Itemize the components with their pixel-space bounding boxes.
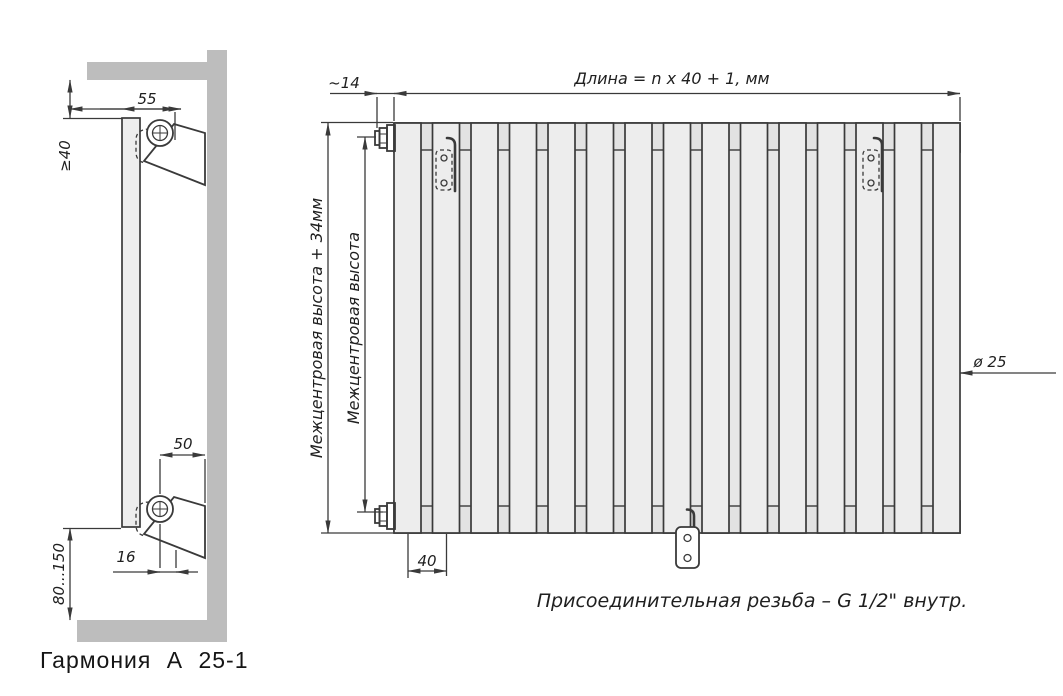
dim-label-40: 40 (417, 552, 436, 570)
dim-label-height-overall: Межцентровая высота + 34мм (307, 198, 326, 458)
dim-label-80-150: 80...150 (50, 543, 68, 605)
dim-bracket-offset-bottom: 50 (160, 435, 205, 503)
dim-tube-diameter: ø 25 (960, 353, 1056, 373)
front-tube-6 (587, 123, 614, 533)
front-tube-4 (510, 123, 537, 533)
dim-label-height-centers: Межцентровая высота (344, 232, 363, 424)
back-tube-3 (498, 150, 510, 506)
dim-ceiling-clearance: ≥40 (56, 80, 122, 172)
side-bracket-top (136, 120, 205, 185)
dim-label-diameter: ø 25 (972, 353, 1006, 371)
plug-bottom (375, 503, 395, 529)
front-tube-3 (471, 123, 498, 533)
dim-label-length: Длина = n x 40 + 1, мм (573, 69, 769, 88)
front-tube-7 (625, 123, 652, 533)
front-tube-14 (895, 123, 922, 533)
front-tube-1 (394, 123, 421, 533)
dim-label-50: 50 (173, 435, 192, 453)
floor-section (77, 620, 207, 642)
back-tube-11 (806, 150, 818, 506)
dim-valve-protrusion-and-length: ~14 Длина = n x 40 + 1, мм (328, 69, 960, 128)
dim-floor-clearance: 80...150 (50, 528, 121, 620)
back-tube-5 (575, 150, 587, 506)
air-valve-top (375, 125, 395, 151)
back-tube-8 (690, 150, 702, 506)
model-caption: Гармония А 25-1 (40, 647, 249, 673)
front-view: ~14 Длина = n x 40 + 1, мм Межцентровая … (307, 69, 1056, 612)
front-tube-5 (548, 123, 575, 533)
wall-section (207, 50, 227, 642)
dim-height-centers: Межцентровая высота (344, 137, 383, 512)
radiator-side-column (122, 118, 140, 527)
back-tube-2 (459, 150, 471, 506)
dim-label-14: ~14 (328, 74, 360, 92)
back-tube-6 (613, 150, 625, 506)
dim-label-55: 55 (137, 90, 156, 108)
front-tube-11 (779, 123, 806, 533)
ceiling-section (87, 62, 207, 80)
technical-drawing-page: 55 ≥40 50 16 80...150 (0, 0, 1063, 696)
back-tube-7 (652, 150, 664, 506)
back-tube-10 (767, 150, 779, 506)
front-tube-15 (933, 123, 960, 533)
side-view: 55 ≥40 50 16 80...150 (40, 50, 249, 673)
front-tube-9 (702, 123, 729, 533)
radiator-drawing: 55 ≥40 50 16 80...150 (0, 0, 1063, 696)
back-tube-13 (883, 150, 895, 506)
front-tube-12 (818, 123, 845, 533)
front-tube-10 (741, 123, 768, 533)
dim-label-ge40: ≥40 (56, 140, 74, 172)
back-tube-4 (536, 150, 548, 506)
front-tube-8 (664, 123, 691, 533)
side-bracket-bottom (136, 496, 205, 558)
radiator-body (394, 123, 960, 533)
back-tube-1 (421, 150, 433, 506)
thread-note: Присоединительная резьба – G 1/2" внутр. (537, 590, 968, 612)
back-tube-9 (729, 150, 741, 506)
dim-tube-pitch: 40 (408, 534, 447, 578)
back-tube-14 (921, 150, 933, 506)
dim-label-16: 16 (116, 548, 135, 566)
back-tube-12 (844, 150, 856, 506)
